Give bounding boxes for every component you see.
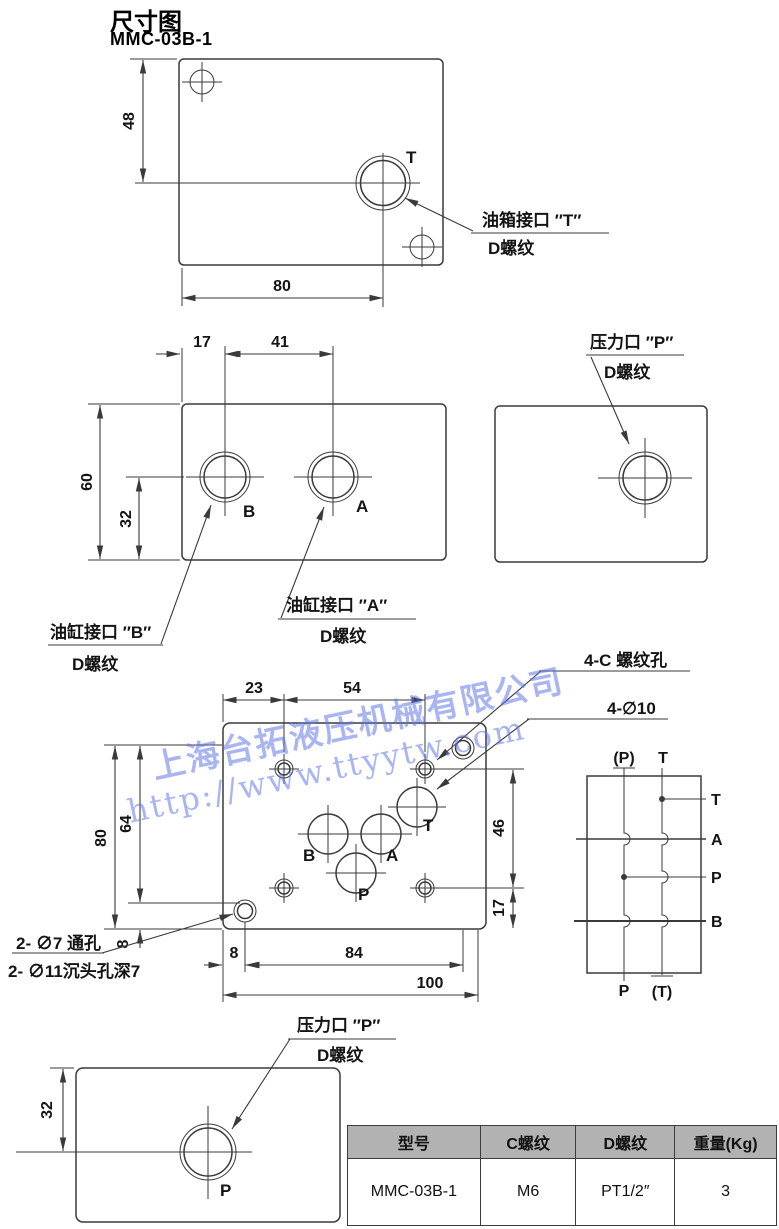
spec-value-model: MMC-03B-1 (348, 1159, 481, 1226)
main-dim-17: 17 (491, 899, 508, 917)
spec-header-c-thread: C螺纹 (480, 1126, 576, 1159)
main-dim-80: 80 (93, 829, 110, 847)
schematic-top-p-label: (P) (613, 750, 634, 767)
corner-bolt-holes (234, 737, 474, 922)
tank-port-note-line2: D螺纹 (488, 238, 535, 258)
main-port-t-label: T (423, 816, 434, 835)
pressure-note-line2: D螺纹 (317, 1045, 364, 1065)
side-p-note-line2: D螺纹 (604, 362, 651, 382)
port-a-note-line2: D螺纹 (320, 626, 367, 646)
side-p-note-line1: 压力口 ″P″ (590, 332, 673, 352)
spec-table-header-row: 型号 C螺纹 D螺纹 重量(Kg) (348, 1126, 777, 1159)
main-port-p-label: P (358, 885, 369, 904)
spec-value-c-thread: M6 (480, 1159, 576, 1226)
through-holes-note-line1: 2- ∅7 通孔 (16, 934, 101, 953)
mid-dim-32: 32 (118, 510, 135, 528)
main-dim-84: 84 (345, 945, 363, 962)
side-view: 压力口 ″P″ D螺纹 (495, 332, 707, 562)
top-view: 48 80 T 油箱接口 ″T″ D螺纹 (121, 59, 609, 307)
spec-header-model: 型号 (348, 1126, 481, 1159)
model-number: MMC-03B-1 (110, 29, 213, 50)
mid-dim-60: 60 (79, 473, 96, 491)
main-port-circles (298, 778, 446, 902)
bottom-dim-32: 32 (39, 1101, 56, 1119)
mid-dim-41: 41 (271, 334, 289, 351)
schematic-right-p-label: P (711, 870, 722, 887)
schematic-bottom-t-label: (T) (652, 984, 672, 1001)
mid-view: 17 41 60 32 B A 油缸接口 ″B″ D螺纹 油缸接口 ″A″ D螺… (48, 334, 446, 674)
main-dim-64: 64 (118, 815, 135, 833)
port-b-note-line2: D螺纹 (72, 654, 119, 674)
top-dim-48: 48 (121, 112, 138, 130)
tank-port-note-line1: 油箱接口 ″T″ (482, 210, 581, 230)
mid-port-b-label: B (243, 502, 255, 521)
main-dim-46: 46 (491, 819, 508, 837)
top-port-t-label: T (406, 148, 417, 167)
bottom-port-p-label: P (220, 1181, 231, 1200)
c-thread-holes (269, 754, 440, 903)
spec-value-weight: 3 (675, 1159, 777, 1226)
four-d10-note: 4-∅10 (607, 699, 656, 718)
schematic-right-t-label: T (711, 792, 721, 809)
spec-table-data-row: MMC-03B-1 M6 PT1/2″ 3 (348, 1159, 777, 1226)
top-dim-80: 80 (273, 278, 291, 295)
main-dim-54: 54 (343, 680, 361, 697)
main-port-b-label: B (303, 846, 315, 865)
through-holes-note-line2: 2- ∅11沉头孔深7 (8, 961, 140, 981)
port-a-note-line1: 油缸接口 ″A″ (286, 595, 387, 615)
bottom-view: P 32 (16, 1068, 340, 1222)
schematic-bottom-p-label: P (619, 983, 630, 1000)
main-dim-100: 100 (417, 975, 444, 992)
dimension-drawing-page: 尺寸图 MMC-03B-1 48 (0, 0, 779, 1229)
four-c-thread-note: 4-C 螺纹孔 (584, 650, 667, 670)
main-dim-8-bottom: 8 (230, 945, 239, 962)
main-dim-23: 23 (245, 680, 263, 697)
schematic-right-a-label: A (711, 832, 723, 849)
spec-table: 型号 C螺纹 D螺纹 重量(Kg) MMC-03B-1 M6 PT1/2″ 3 (347, 1125, 777, 1226)
spec-header-d-thread: D螺纹 (576, 1126, 675, 1159)
schematic-symbol: (P) T T A P B P (T) (574, 750, 723, 1001)
spec-value-d-thread: PT1/2″ (576, 1159, 675, 1226)
mid-dim-17: 17 (193, 334, 211, 351)
drawing-canvas: 48 80 T 油箱接口 ″T″ D螺纹 (0, 0, 779, 1229)
schematic-right-b-label: B (711, 914, 723, 931)
mid-port-a-label: A (356, 497, 368, 516)
port-b-note-line1: 油缸接口 ″B″ (50, 622, 151, 642)
pressure-note-line1: 压力口 ″P″ (297, 1015, 380, 1035)
spec-header-weight: 重量(Kg) (675, 1126, 777, 1159)
schematic-top-t-label: T (658, 750, 668, 767)
main-port-a-label: A (386, 846, 398, 865)
